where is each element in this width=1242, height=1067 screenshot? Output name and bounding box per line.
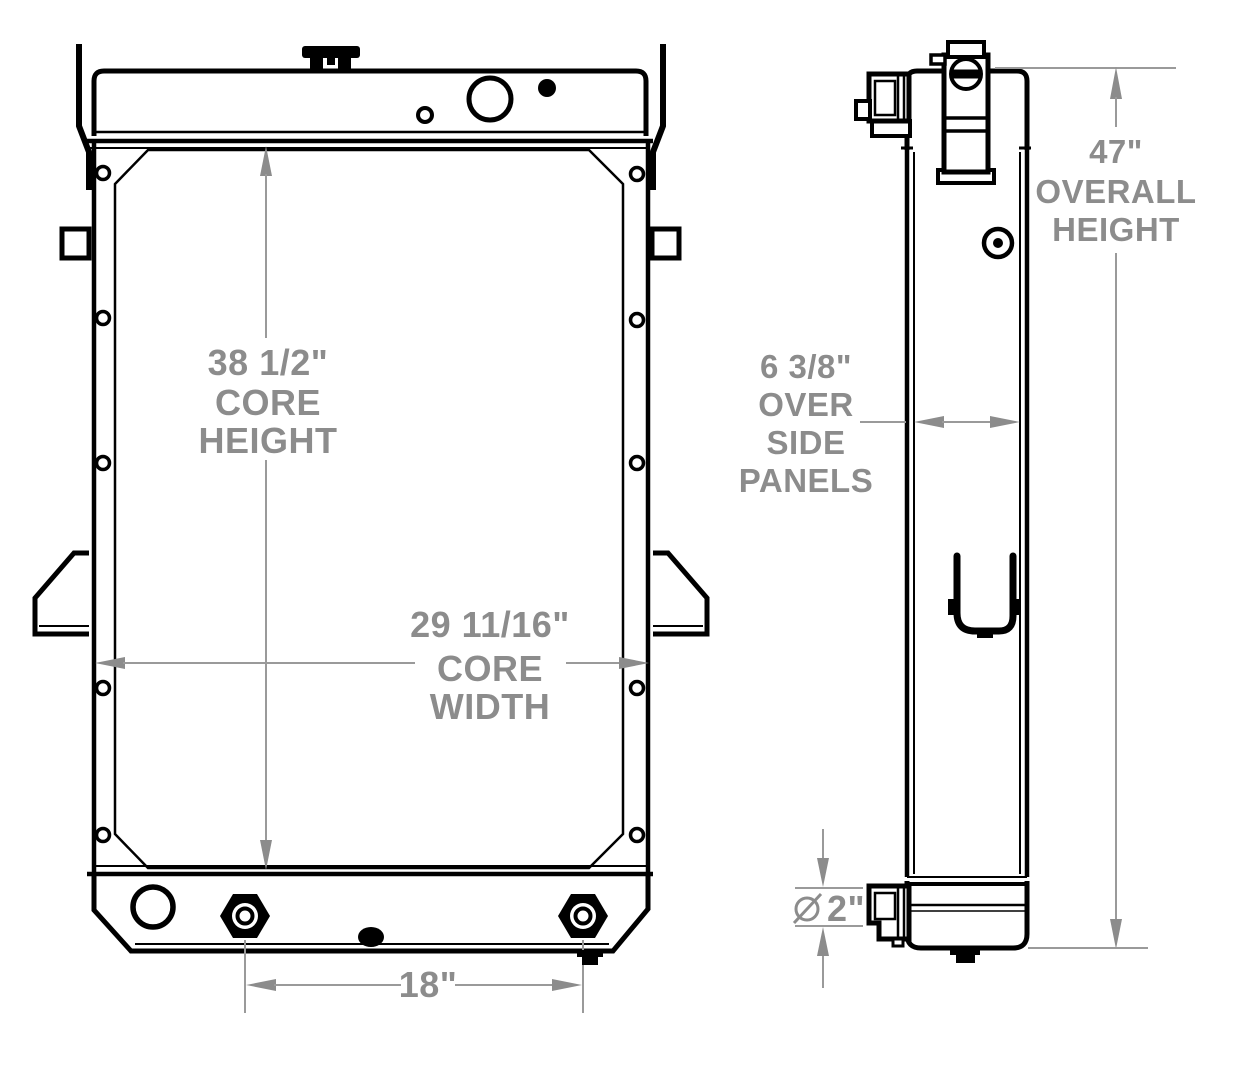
outlet-diameter-value: 2" — [827, 888, 865, 929]
overall-height-label1: OVERALL — [1035, 173, 1196, 210]
side-filler-cap-assembly — [931, 42, 994, 183]
core-height-value: 38 1/2" — [208, 342, 329, 383]
filler-cap-top — [302, 46, 360, 58]
front-top-right-bracket — [653, 44, 663, 190]
overflow-nub — [931, 55, 945, 64]
front-drain-nub — [577, 951, 603, 965]
hex-bolt-right — [558, 894, 608, 938]
right-panel-rivet-holes — [631, 168, 644, 842]
filler-cap-center — [327, 58, 335, 65]
side-view — [856, 42, 1031, 963]
side-drain-nub — [950, 948, 980, 963]
core-width-value: 29 11/16" — [410, 604, 570, 645]
core-height-label2: HEIGHT — [198, 420, 337, 461]
depth-label2: SIDE — [766, 424, 845, 461]
arrow-right-icon — [619, 657, 649, 669]
dim-outlet-diameter: 2" — [794, 829, 865, 988]
front-top-tank — [94, 71, 646, 136]
arrow-up-icon — [1110, 67, 1122, 99]
depth-label1: OVER — [758, 386, 854, 423]
rivet-hole — [631, 829, 644, 842]
dim-core-width: 29 11/16" CORE WIDTH — [95, 604, 649, 727]
u-bracket-outline — [957, 556, 1013, 631]
rivet-hole — [97, 457, 110, 470]
left-panel-rivet-holes — [97, 167, 110, 842]
side-u-bracket — [948, 556, 1020, 638]
outlet-pipe-notch — [893, 939, 903, 946]
tank-small-hole — [418, 108, 432, 122]
rivet-hole — [631, 314, 644, 327]
depth-label3: PANELS — [739, 462, 873, 499]
drain-nub-lower — [956, 955, 975, 963]
mount-spacing-value: 18" — [399, 964, 458, 1005]
arrow-left-icon — [914, 416, 944, 428]
drain-nub-lower — [582, 957, 598, 965]
depth-value: 6 3/8" — [760, 348, 852, 385]
front-top-left-bracket — [79, 44, 89, 190]
drain-nub-upper — [950, 948, 980, 955]
radiator-dimension-drawing: 38 1/2" CORE HEIGHT 29 11/16" CORE WIDTH… — [0, 0, 1242, 1067]
left-mount-bracket — [35, 553, 89, 634]
filler-cap — [302, 46, 360, 72]
arrow-down-icon — [1110, 919, 1122, 949]
right-mount-bracket-outline — [653, 553, 707, 634]
arrow-right-icon — [990, 416, 1020, 428]
inlet-pipe-tab — [856, 101, 870, 119]
hex-nut-stud — [238, 909, 253, 924]
dim-depth-over-panels: 6 3/8" OVER SIDE PANELS — [739, 348, 1020, 499]
filler-neck-circle — [469, 78, 511, 120]
arrow-right-icon — [552, 979, 582, 991]
arrow-left-icon — [246, 979, 276, 991]
rivet-hole — [631, 682, 644, 695]
core-width-label2: WIDTH — [430, 686, 550, 727]
core-height-label1: CORE — [215, 382, 321, 423]
filler-cap-leg-right — [338, 58, 351, 72]
outlet-opening-circle — [133, 887, 173, 927]
right-side-tab — [652, 229, 679, 258]
u-bracket-foot — [977, 630, 993, 638]
arrow-down-icon — [817, 858, 829, 887]
rivet-hole — [97, 167, 110, 180]
drain-plug-dot — [358, 927, 384, 947]
arrow-up-icon — [817, 927, 829, 956]
hex-bolt-left — [220, 894, 270, 938]
right-mount-bracket — [653, 553, 707, 634]
core-frame — [115, 150, 623, 868]
left-mount-bracket-outline — [35, 553, 89, 634]
rivet-hole — [97, 829, 110, 842]
cap-top — [948, 42, 984, 57]
arrow-left-icon — [95, 657, 125, 669]
core-width-label1: CORE — [437, 648, 543, 689]
hex-nut-stud — [576, 909, 591, 924]
side-fitting-dot — [993, 238, 1003, 248]
dim-core-height: 38 1/2" CORE HEIGHT — [198, 146, 337, 870]
rivet-hole — [631, 168, 644, 181]
rivet-hole — [97, 682, 110, 695]
drain-nub-upper — [577, 951, 603, 957]
left-side-tab — [62, 229, 89, 258]
side-inlet-pipe — [856, 74, 910, 136]
diameter-symbol — [794, 894, 821, 923]
rivet-hole — [97, 312, 110, 325]
vent-hole-dot — [538, 79, 556, 97]
overall-height-value: 47" — [1089, 133, 1143, 170]
side-bottom-tank — [907, 881, 1027, 948]
filler-cap-leg-left — [310, 58, 323, 72]
side-outlet-pipe — [869, 886, 909, 946]
overall-height-label2: HEIGHT — [1052, 211, 1180, 248]
rivet-hole — [631, 457, 644, 470]
front-view — [35, 44, 707, 965]
